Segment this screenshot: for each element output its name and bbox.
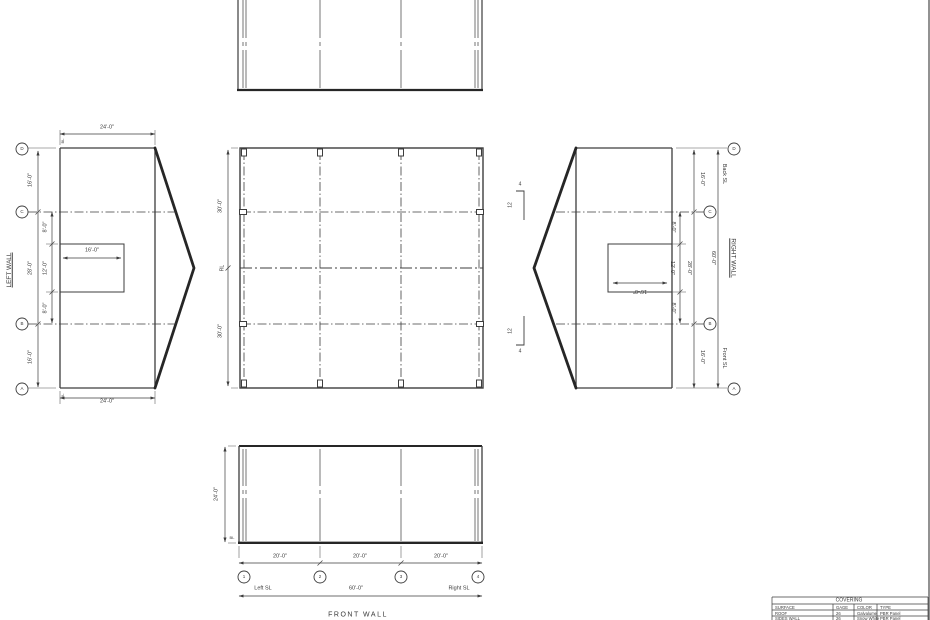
left-wall-grid-bubbles (16, 143, 28, 395)
left-wall-dim-b-a: 16'-0" (28, 350, 34, 364)
left-wall-dim-width-bottom: 24'-0" (100, 399, 114, 405)
right-wall-dim-c-opening: 8'-0" (669, 222, 675, 233)
right-wall-dim-opening-b: 8'-0" (669, 303, 675, 314)
left-wall-baseline-bottom: BL (61, 394, 65, 399)
roof-dim-lower: 30'-0" (218, 324, 224, 338)
covering-table-title: COVERING (836, 598, 863, 603)
pitch-rise-top: 4 (519, 183, 522, 188)
left-wall-dim-opening-b: 8'-0" (43, 303, 49, 314)
right-sl-label: Right SL (448, 586, 469, 592)
right-wall-dim-total: 60'-0" (709, 251, 715, 265)
grid-bubble-1: 1 (243, 575, 246, 580)
grid-bubble-4: 4 (477, 575, 480, 580)
grid-bubble-b-left: B (20, 322, 23, 327)
covering-header-surface: SURFACE (775, 605, 795, 609)
left-wall-dim-d-c: 16'-0" (28, 173, 34, 187)
pitch-run-top: 12 (509, 202, 514, 208)
front-wall-dim-total: 60'-0" (349, 586, 363, 592)
left-wall-opening-width-dim: 16'-0" (85, 248, 99, 254)
front-wall-grid-bubbles (238, 571, 484, 583)
drawing-sheet: 24'-0" BL 16'-0" 8'-0" 16'-0" 12'-0" 28'… (0, 0, 930, 620)
front-wall-elevation (225, 446, 484, 596)
front-wall-bay-dim-2: 20'-0" (353, 554, 367, 560)
right-wall-dim-opening-height: 12'-0" (668, 261, 674, 275)
drawing-canvas (0, 0, 930, 620)
front-wall-bay-dim-1: 20'-0" (273, 554, 287, 560)
back-wall-elevation (237, 0, 483, 90)
roof-dim-upper: 30'-0" (218, 199, 224, 213)
pitch-rise-bottom: 4 (519, 350, 522, 355)
front-wall-baseline: BL (230, 536, 235, 540)
grid-bubble-c-right: C (708, 210, 711, 215)
left-wall-dim-c-opening: 8'-0" (43, 222, 49, 233)
right-wall-dim-b-a: 16'-0" (698, 350, 704, 364)
covering-header-gage: GAGE (836, 605, 848, 609)
covering-header-type: TYPE (880, 605, 891, 609)
left-sl-label: Left SL (254, 586, 271, 592)
grid-bubble-2: 2 (319, 575, 322, 580)
front-wall-dim-height: 24'-0" (214, 487, 220, 501)
front-wall-bay-dim-3: 20'-0" (434, 554, 448, 560)
grid-bubble-b-right: B (708, 322, 711, 327)
grid-bubble-a-left: A (20, 387, 23, 392)
left-wall-dim-width-top: 24'-0" (100, 125, 114, 131)
grid-bubble-c-left: C (20, 210, 23, 215)
roof-ridge-label: RL (221, 265, 226, 271)
grid-bubble-3: 3 (400, 575, 403, 580)
right-wall-opening (608, 244, 672, 292)
left-wall-baseline-top: BL (61, 139, 65, 144)
back-sl-label: Back SL (720, 164, 726, 184)
right-wall-dim-c-b: 28'-0" (685, 261, 691, 275)
right-wall-title: RIGHT WALL (729, 238, 736, 277)
left-wall-dim-c-b: 28'-0" (28, 261, 34, 275)
grid-bubble-d-right: D (732, 147, 735, 152)
right-wall-dim-d-c: 16'-0" (698, 172, 704, 186)
covering-header-color: COLOR (857, 605, 872, 609)
roof-plan (226, 148, 484, 388)
front-sl-label: Front SL (720, 347, 726, 368)
front-wall-title: FRONT WALL (328, 612, 388, 619)
left-wall-dim-opening-height: 12'-0" (43, 261, 49, 275)
grid-bubble-a-right: A (732, 387, 735, 392)
pitch-run-bottom: 12 (509, 328, 514, 334)
left-wall-title: LEFT WALL (7, 252, 14, 287)
roof-pitch-symbols (516, 191, 524, 345)
right-wall-opening-width-dim: 16'-0" (633, 287, 647, 293)
grid-bubble-d-left: D (20, 147, 23, 152)
right-wall-elevation (516, 143, 740, 395)
